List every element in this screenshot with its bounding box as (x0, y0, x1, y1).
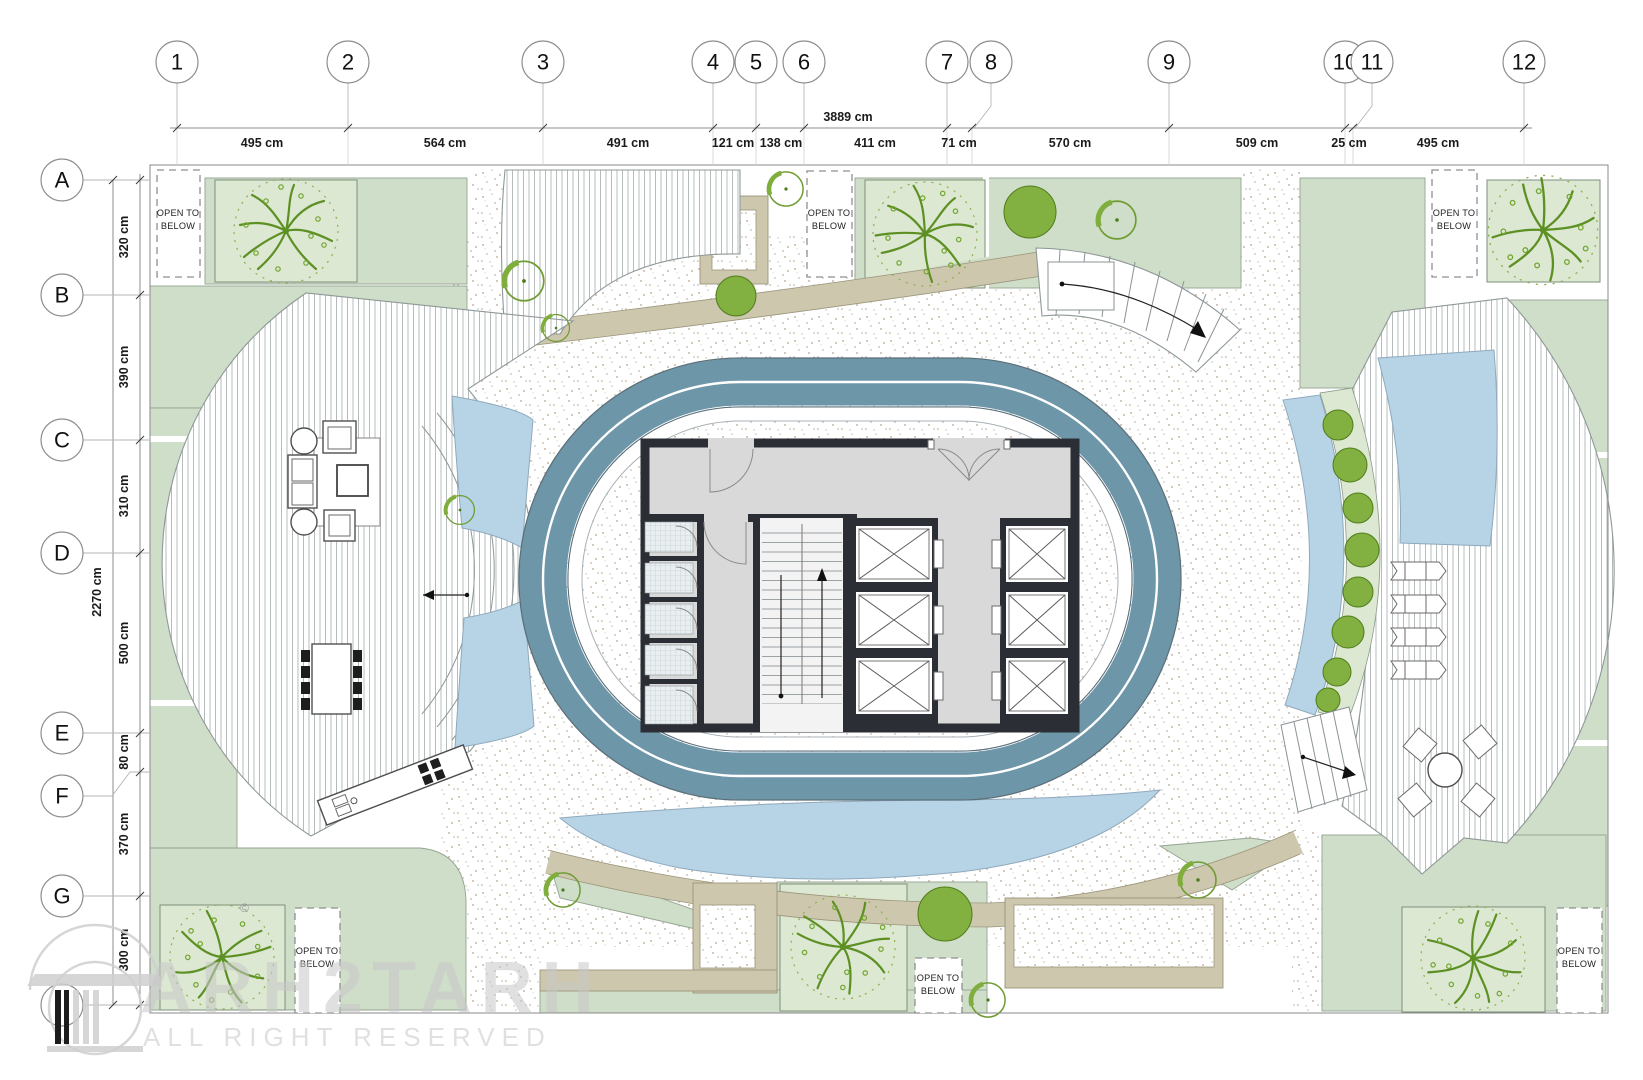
dimension-label: 500 cm (117, 622, 131, 664)
open-to-below-box: OPEN TO BELOW (1557, 908, 1602, 1013)
shrub-icon (1004, 186, 1056, 238)
patio-table (1428, 753, 1462, 787)
grid-row-label: F (55, 784, 68, 809)
svg-text:OPEN TO: OPEN TO (917, 973, 959, 983)
dimension-label: 491 cm (607, 136, 649, 150)
grid-column-label: 7 (941, 50, 953, 75)
side-table (291, 509, 317, 535)
total-width-label: 3889 cm (823, 110, 872, 124)
dimension-label: 310 cm (117, 475, 131, 517)
dimension-label: 25 cm (1331, 136, 1366, 150)
grid-column-label: 5 (750, 50, 762, 75)
floor-plan-drawing: OPEN TO BELOW OPEN TO BELOW OPEN TO BELO… (0, 0, 1643, 1080)
shrub-icon (716, 276, 756, 316)
svg-text:OPEN TO: OPEN TO (1558, 946, 1600, 956)
grid-row-label: E (55, 721, 70, 746)
lounger (1391, 628, 1446, 646)
lounger (1391, 595, 1446, 613)
grid-column-label: 4 (707, 50, 719, 75)
grid-row-label: G (53, 884, 70, 909)
watermark-tagline: ALL RIGHT RESERVED (143, 1022, 552, 1052)
stairwell (753, 518, 850, 732)
open-to-below-label: BELOW (161, 221, 195, 231)
dimension-label: 121 cm (712, 136, 754, 150)
dimension-label: 570 cm (1049, 136, 1091, 150)
svg-text:BELOW: BELOW (1562, 959, 1596, 969)
svg-text:BELOW: BELOW (921, 986, 955, 996)
svg-text:BELOW: BELOW (812, 221, 846, 231)
dimension-label: 495 cm (241, 136, 283, 150)
dimension-label: 370 cm (117, 813, 131, 855)
svg-text:BELOW: BELOW (1437, 221, 1471, 231)
copyright-mark: © (240, 901, 249, 915)
dimension-label: 411 cm (854, 136, 896, 150)
svg-text:OPEN TO: OPEN TO (1433, 208, 1475, 218)
grid-column-label: 1 (171, 50, 183, 75)
grid-column-label: 9 (1163, 50, 1175, 75)
dimension-label: 320 cm (117, 216, 131, 258)
dimension-label: 80 cm (117, 734, 131, 769)
open-to-below-box: OPEN TO BELOW (807, 171, 852, 277)
building-core (641, 438, 1075, 732)
grid-row-label: A (55, 168, 70, 193)
dining-table (312, 644, 351, 714)
grid-column-label: 12 (1512, 50, 1536, 75)
dimension-label: 390 cm (117, 346, 131, 388)
grid-column-label: 6 (798, 50, 810, 75)
open-to-below-box: OPEN TO BELOW (1432, 170, 1477, 277)
dimension-label: 138 cm (760, 136, 802, 150)
lounger (1391, 562, 1446, 580)
grid-row-label: D (54, 541, 70, 566)
grid-column-label: 3 (537, 50, 549, 75)
grid-row-label: C (54, 428, 70, 453)
shrub-icon (918, 887, 972, 941)
grid-column-label: 8 (985, 50, 997, 75)
coffee-table (337, 465, 368, 496)
floor-plan-page: OPEN TO BELOW OPEN TO BELOW OPEN TO BELO… (0, 0, 1643, 1080)
elevator-bank-right (992, 518, 1075, 732)
dimension-label: 509 cm (1236, 136, 1278, 150)
toilet-stalls (645, 522, 697, 724)
open-to-below-box: OPEN TO BELOW (915, 958, 962, 1013)
open-to-below-label: OPEN TO (157, 208, 199, 218)
watermark-brand: ARH2TARH (140, 948, 603, 1028)
dimension-label: 495 cm (1417, 136, 1459, 150)
open-to-below-box: OPEN TO BELOW (157, 170, 200, 277)
grid-column-label: 2 (342, 50, 354, 75)
sofa-set (288, 421, 380, 541)
grid-column-label: 11 (1361, 50, 1384, 75)
dimension-label: 564 cm (424, 136, 466, 150)
dimension-label: 71 cm (941, 136, 976, 150)
svg-text:OPEN TO: OPEN TO (808, 208, 850, 218)
grid-row-label: B (55, 283, 70, 308)
side-table (291, 428, 317, 454)
elevator-bank-left (850, 518, 943, 732)
lounger (1391, 661, 1446, 679)
total-height-label: 2270 cm (90, 567, 104, 616)
